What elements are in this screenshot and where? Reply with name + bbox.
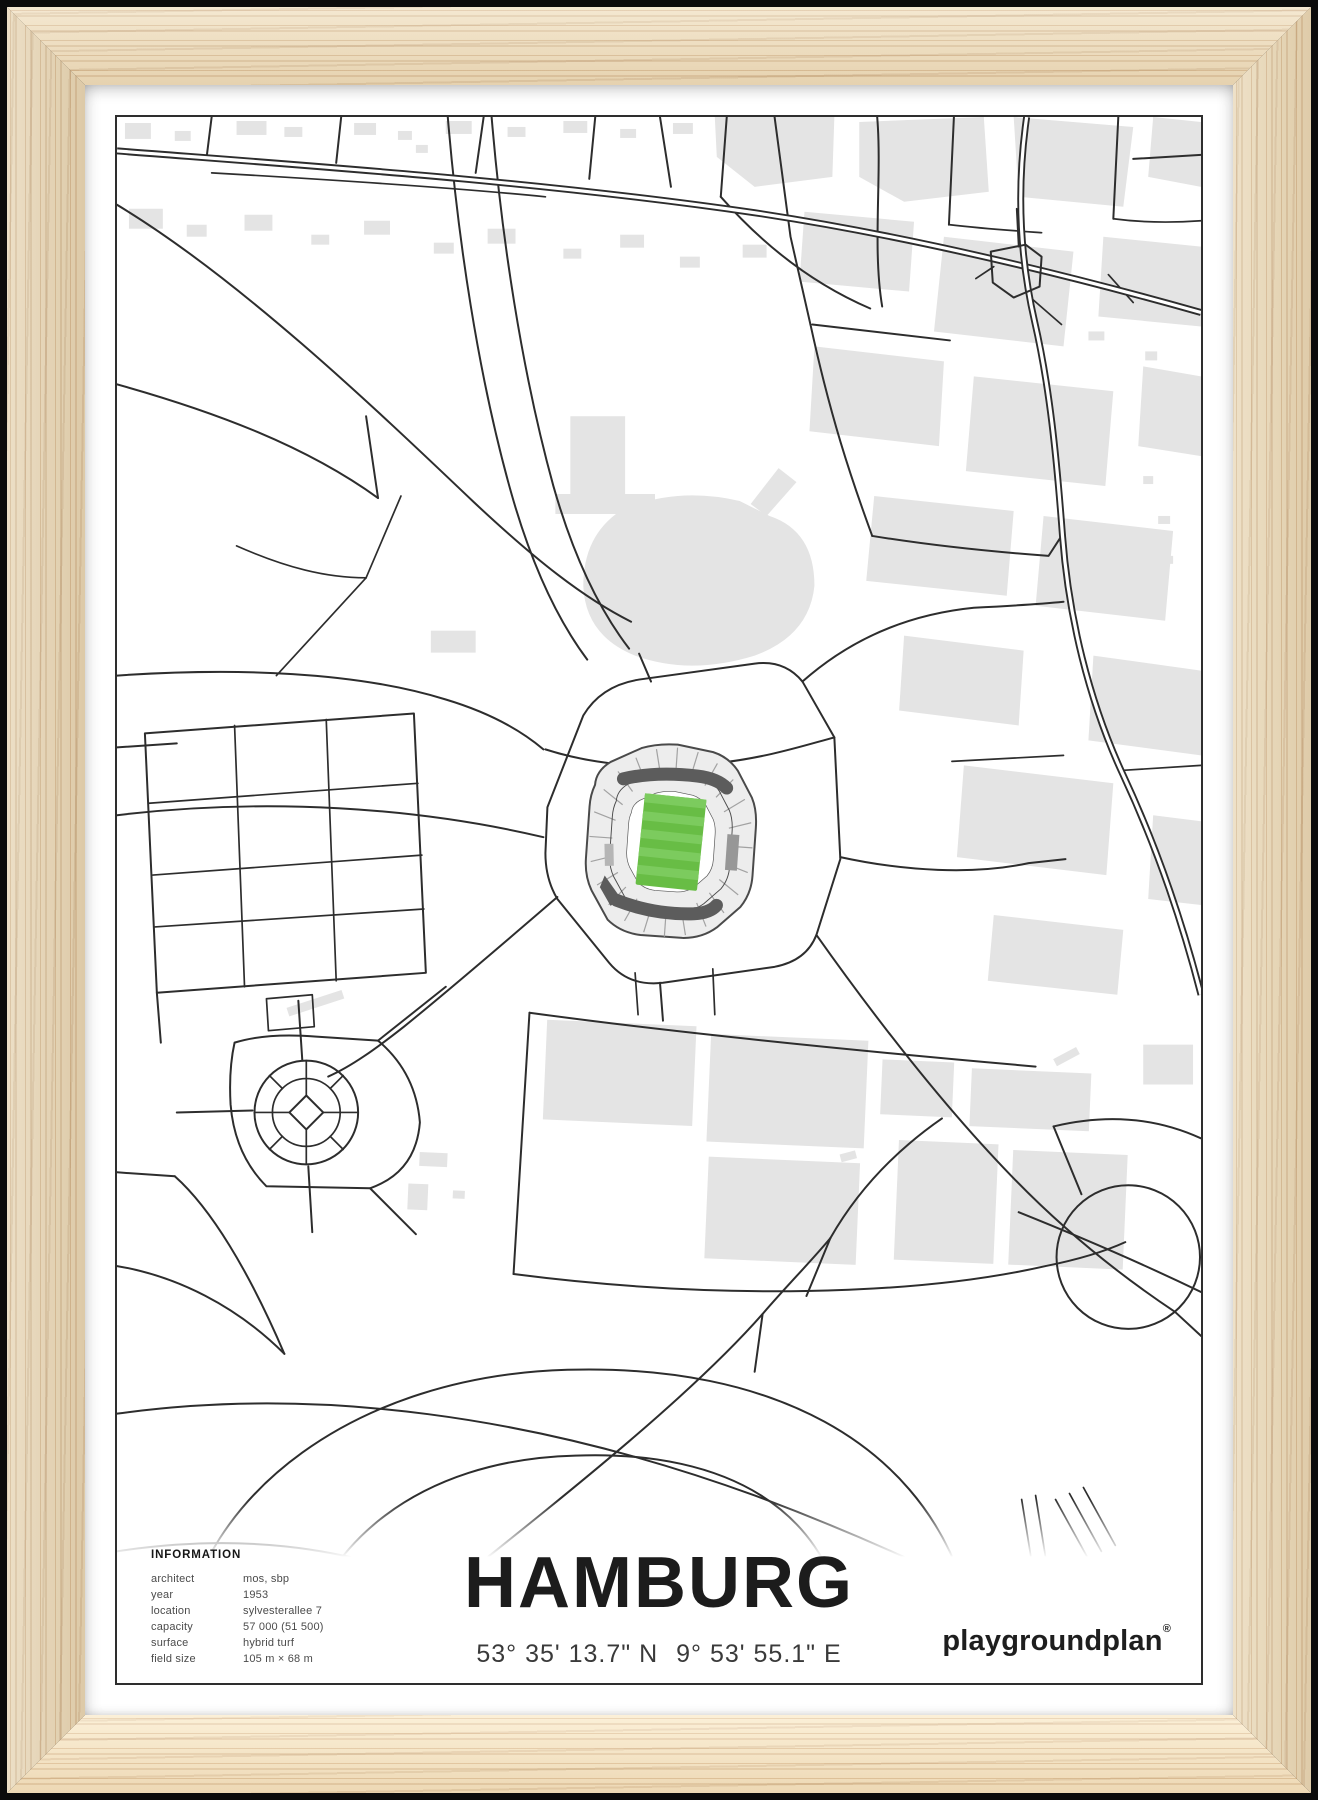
garden-compound	[145, 713, 426, 1042]
stadium-pitch	[635, 793, 706, 891]
frame-right	[1233, 7, 1311, 1793]
buildings	[125, 117, 1201, 1277]
frame-bottom	[7, 1715, 1311, 1793]
registered-mark: ®	[1163, 1623, 1171, 1635]
poster-mat: INFORMATION architectmos, sbp year1953 l…	[85, 85, 1233, 1715]
map-border: INFORMATION architectmos, sbp year1953 l…	[115, 115, 1203, 1685]
frame-top	[7, 7, 1311, 85]
page-title: HAMBURG	[117, 1547, 1201, 1619]
framed-poster: INFORMATION architectmos, sbp year1953 l…	[0, 0, 1318, 1800]
arena-building	[431, 416, 815, 665]
stadium	[581, 739, 761, 943]
fountain	[177, 987, 446, 1234]
frame-left	[7, 7, 85, 1793]
brand-name: playgroundplan	[942, 1625, 1162, 1657]
longitude: 9° 53' 55.1" E	[676, 1640, 842, 1668]
training-pitches	[406, 1014, 1133, 1277]
map-graphic	[117, 117, 1201, 1683]
latitude: 53° 35' 13.7" N	[476, 1640, 658, 1668]
brand-logo: playgroundplan®	[942, 1623, 1171, 1658]
